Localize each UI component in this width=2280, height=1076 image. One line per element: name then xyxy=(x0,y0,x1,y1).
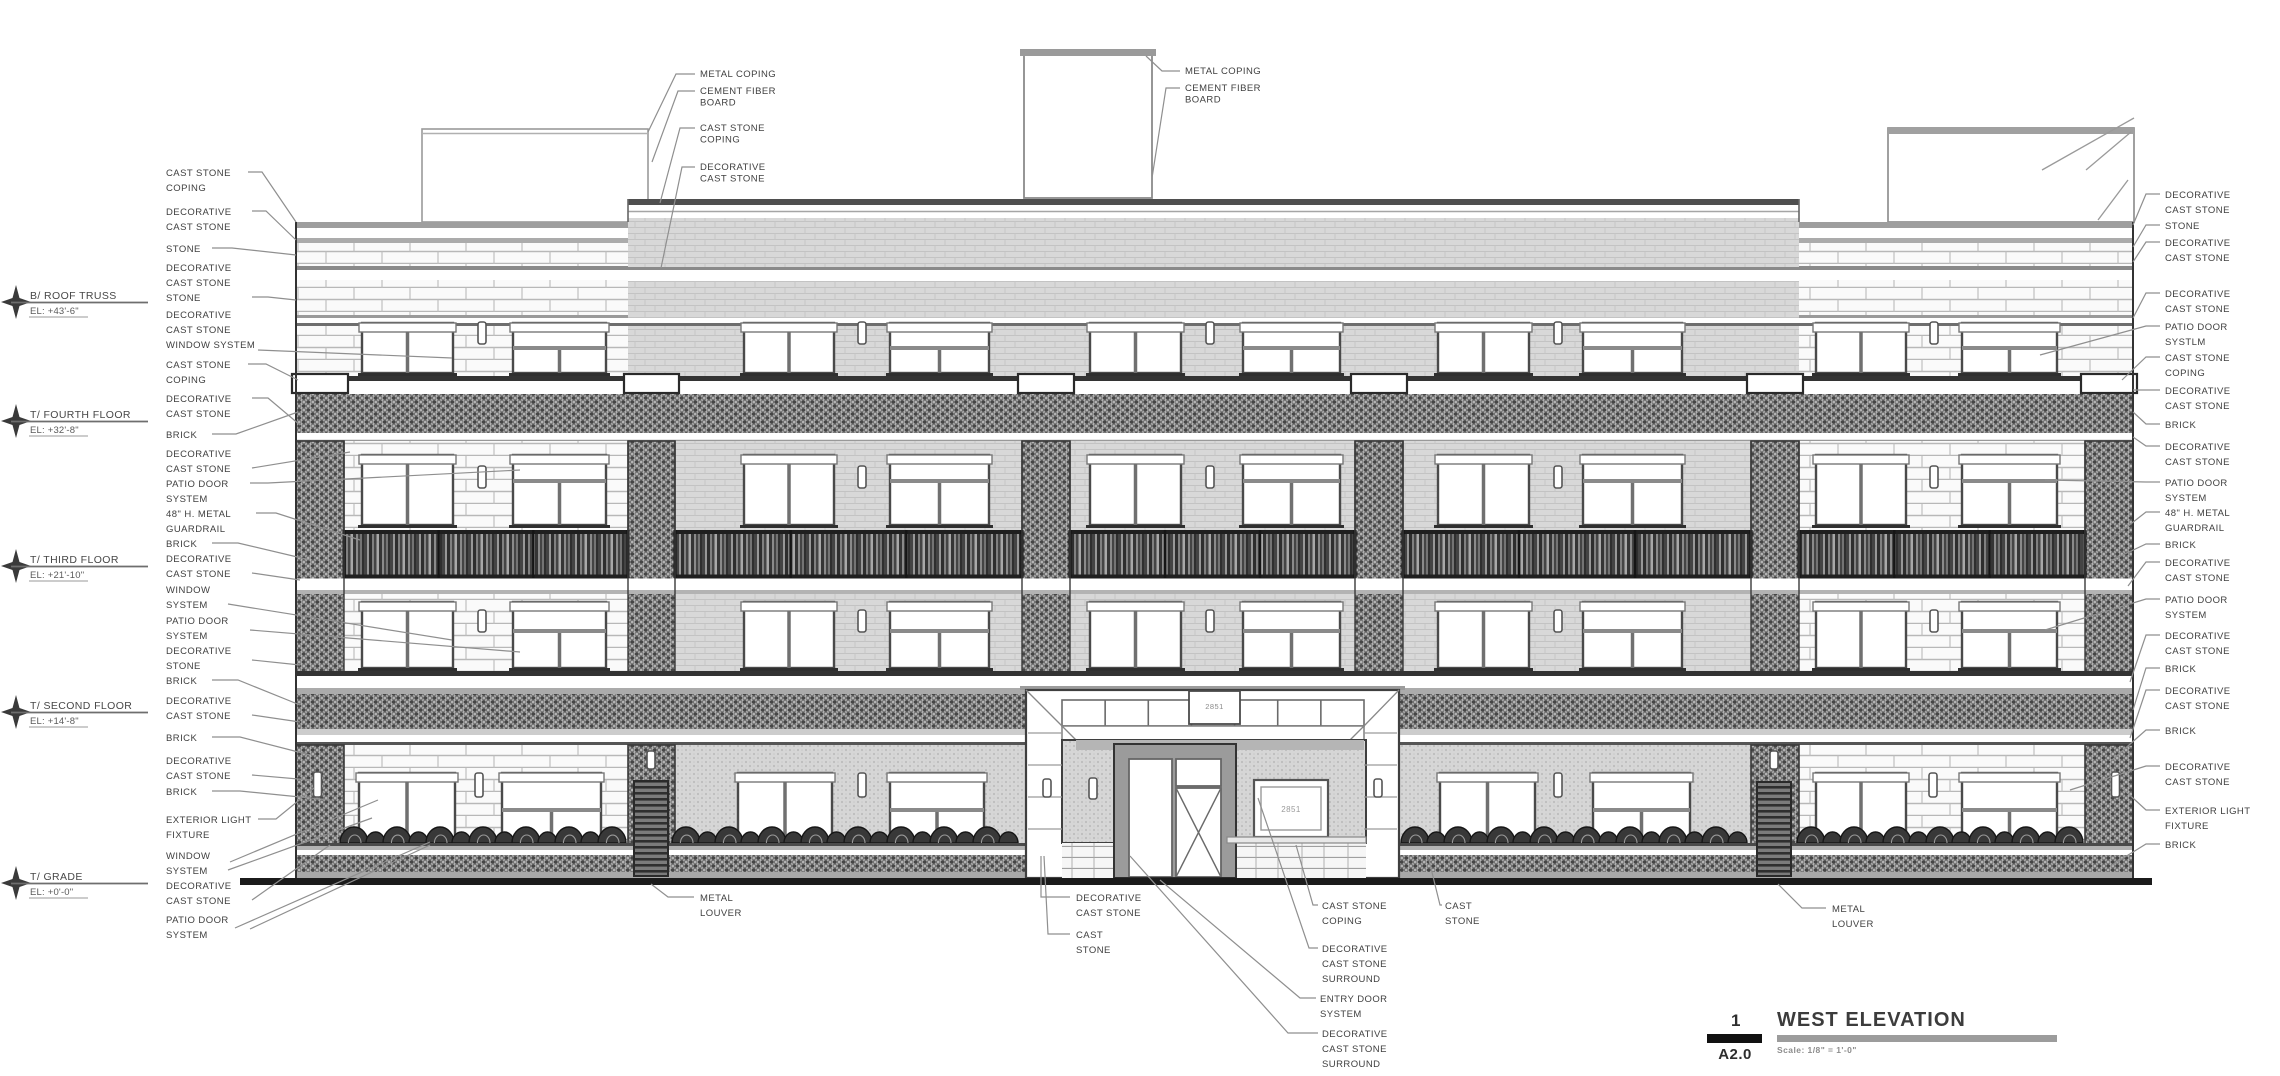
svg-text:BOARD: BOARD xyxy=(1185,95,1221,106)
svg-text:CAST STONE: CAST STONE xyxy=(2165,701,2230,712)
svg-text:COPING: COPING xyxy=(700,135,740,146)
svg-text:METAL COPING: METAL COPING xyxy=(1185,66,1261,77)
svg-text:STONE: STONE xyxy=(2165,221,2200,232)
svg-text:DECORATIVE: DECORATIVE xyxy=(2165,190,2231,201)
svg-text:WEST ELEVATION: WEST ELEVATION xyxy=(1777,1009,1966,1031)
svg-text:DECORATIVE: DECORATIVE xyxy=(166,756,232,767)
svg-text:PATIO DOOR: PATIO DOOR xyxy=(166,915,229,926)
svg-text:SYSTEM: SYSTEM xyxy=(2165,610,2207,621)
svg-text:WINDOW SYSTEM: WINDOW SYSTEM xyxy=(166,340,255,351)
svg-text:BRICK: BRICK xyxy=(2165,664,2196,675)
svg-text:EL: +21'-10": EL: +21'-10" xyxy=(30,570,84,581)
svg-text:DECORATIVE: DECORATIVE xyxy=(2165,238,2231,249)
svg-text:SYSTEM: SYSTEM xyxy=(166,930,208,941)
svg-text:DECORATIVE: DECORATIVE xyxy=(166,263,232,274)
svg-text:CAST STONE: CAST STONE xyxy=(166,325,231,336)
svg-text:DECORATIVE: DECORATIVE xyxy=(2165,386,2231,397)
svg-text:B/ ROOF TRUSS: B/ ROOF TRUSS xyxy=(30,290,117,302)
svg-text:1: 1 xyxy=(1731,1011,1741,1030)
svg-text:DECORATIVE: DECORATIVE xyxy=(166,881,232,892)
svg-text:DECORATIVE: DECORATIVE xyxy=(166,554,232,565)
svg-text:EL: +32'-8": EL: +32'-8" xyxy=(30,425,79,436)
svg-text:STONE: STONE xyxy=(166,244,201,255)
svg-text:SYSTEM: SYSTEM xyxy=(166,631,208,642)
svg-text:T/ FOURTH FLOOR: T/ FOURTH FLOOR xyxy=(30,409,131,421)
svg-text:CAST: CAST xyxy=(1445,901,1472,912)
svg-text:GUARDRAIL: GUARDRAIL xyxy=(2165,523,2224,534)
svg-text:CAST STONE: CAST STONE xyxy=(166,896,231,907)
svg-text:CEMENT FIBER: CEMENT FIBER xyxy=(700,86,776,97)
svg-text:CAST STONE: CAST STONE xyxy=(166,360,231,371)
svg-text:PATIO DOOR: PATIO DOOR xyxy=(2165,322,2228,333)
svg-text:CAST STONE: CAST STONE xyxy=(1322,901,1387,912)
svg-text:Scale: 1/8" = 1'-0": Scale: 1/8" = 1'-0" xyxy=(1777,1045,1857,1055)
svg-text:DECORATIVE: DECORATIVE xyxy=(2165,686,2231,697)
svg-text:CAST STONE: CAST STONE xyxy=(1322,1044,1387,1055)
svg-text:METAL: METAL xyxy=(1832,904,1865,915)
svg-text:STONE: STONE xyxy=(1076,945,1111,956)
svg-text:DECORATIVE: DECORATIVE xyxy=(166,449,232,460)
svg-text:CAST STONE: CAST STONE xyxy=(166,168,231,179)
svg-text:WINDOW: WINDOW xyxy=(166,585,210,596)
svg-text:CAST STONE: CAST STONE xyxy=(2165,353,2230,364)
svg-text:CAST STONE: CAST STONE xyxy=(166,222,231,233)
svg-text:EXTERIOR LIGHT: EXTERIOR LIGHT xyxy=(2165,806,2250,817)
svg-text:DECORATIVE: DECORATIVE xyxy=(2165,289,2231,300)
svg-text:COPING: COPING xyxy=(1322,916,1362,927)
svg-text:SYSTEM: SYSTEM xyxy=(166,600,208,611)
svg-text:GUARDRAIL: GUARDRAIL xyxy=(166,524,225,535)
svg-text:METAL COPING: METAL COPING xyxy=(700,69,776,80)
svg-text:DECORATIVE: DECORATIVE xyxy=(166,646,232,657)
svg-text:DECORATIVE: DECORATIVE xyxy=(700,162,766,173)
svg-text:EL: +43'-6": EL: +43'-6" xyxy=(30,306,79,317)
svg-text:BRICK: BRICK xyxy=(166,430,197,441)
svg-text:DECORATIVE: DECORATIVE xyxy=(166,207,232,218)
svg-text:CAST STONE: CAST STONE xyxy=(166,771,231,782)
svg-text:CAST STONE: CAST STONE xyxy=(2165,205,2230,216)
svg-text:DECORATIVE: DECORATIVE xyxy=(2165,762,2231,773)
svg-text:BRICK: BRICK xyxy=(166,539,197,550)
svg-text:CAST STONE: CAST STONE xyxy=(1076,908,1141,919)
svg-text:DECORATIVE: DECORATIVE xyxy=(2165,558,2231,569)
svg-text:T/ GRADE: T/ GRADE xyxy=(30,871,83,883)
svg-text:CAST STONE: CAST STONE xyxy=(166,278,231,289)
svg-text:DECORATIVE: DECORATIVE xyxy=(2165,442,2231,453)
svg-text:BRICK: BRICK xyxy=(2165,540,2196,551)
svg-text:BRICK: BRICK xyxy=(2165,840,2196,851)
svg-text:SYSTEM: SYSTEM xyxy=(2165,493,2207,504)
svg-text:COPING: COPING xyxy=(2165,368,2205,379)
svg-text:COPING: COPING xyxy=(166,183,206,194)
svg-text:PATIO DOOR: PATIO DOOR xyxy=(166,616,229,627)
svg-text:DECORATIVE: DECORATIVE xyxy=(166,310,232,321)
svg-text:T/ THIRD FLOOR: T/ THIRD FLOOR xyxy=(30,554,119,566)
svg-text:2851: 2851 xyxy=(1281,805,1301,814)
svg-text:SURROUND: SURROUND xyxy=(1322,1059,1381,1070)
svg-text:LOUVER: LOUVER xyxy=(700,908,742,919)
svg-text:DECORATIVE: DECORATIVE xyxy=(2165,631,2231,642)
svg-text:CAST STONE: CAST STONE xyxy=(166,409,231,420)
svg-text:A2.0: A2.0 xyxy=(1718,1046,1752,1063)
svg-text:BRICK: BRICK xyxy=(2165,726,2196,737)
svg-text:FIXTURE: FIXTURE xyxy=(2165,821,2209,832)
svg-text:EL: +14'-8": EL: +14'-8" xyxy=(30,716,79,727)
svg-text:BRICK: BRICK xyxy=(166,787,197,798)
svg-text:CAST: CAST xyxy=(1076,930,1103,941)
svg-text:CAST STONE: CAST STONE xyxy=(166,464,231,475)
svg-text:METAL: METAL xyxy=(700,893,733,904)
svg-text:48" H. METAL: 48" H. METAL xyxy=(166,509,231,520)
svg-text:PATIO DOOR: PATIO DOOR xyxy=(166,479,229,490)
svg-text:SURROUND: SURROUND xyxy=(1322,974,1381,985)
svg-text:DECORATIVE: DECORATIVE xyxy=(1076,893,1142,904)
svg-text:EXTERIOR LIGHT: EXTERIOR LIGHT xyxy=(166,815,251,826)
svg-text:CAST STONE: CAST STONE xyxy=(2165,457,2230,468)
svg-text:CEMENT FIBER: CEMENT FIBER xyxy=(1185,83,1261,94)
svg-text:LOUVER: LOUVER xyxy=(1832,919,1874,930)
svg-text:CAST STONE: CAST STONE xyxy=(2165,401,2230,412)
svg-text:BRICK: BRICK xyxy=(166,676,197,687)
svg-text:CAST STONE: CAST STONE xyxy=(2165,253,2230,264)
svg-text:CAST STONE: CAST STONE xyxy=(166,711,231,722)
svg-text:ENTRY DOOR: ENTRY DOOR xyxy=(1320,994,1388,1005)
svg-text:STONE: STONE xyxy=(1445,916,1480,927)
svg-text:SYSTEM: SYSTEM xyxy=(1320,1009,1362,1020)
svg-text:WINDOW: WINDOW xyxy=(166,851,210,862)
svg-text:BRICK: BRICK xyxy=(2165,420,2196,431)
svg-text:T/ SECOND FLOOR: T/ SECOND FLOOR xyxy=(30,700,132,712)
svg-text:2851: 2851 xyxy=(1205,702,1224,711)
svg-text:CAST STONE: CAST STONE xyxy=(2165,304,2230,315)
svg-text:SYSTLM: SYSTLM xyxy=(2165,337,2206,348)
svg-text:CAST STONE: CAST STONE xyxy=(2165,777,2230,788)
svg-text:SYSTEM: SYSTEM xyxy=(166,866,208,877)
svg-text:PATIO DOOR: PATIO DOOR xyxy=(2165,595,2228,606)
svg-text:SYSTEM: SYSTEM xyxy=(166,494,208,505)
svg-text:BRICK: BRICK xyxy=(166,733,197,744)
svg-text:48" H. METAL: 48" H. METAL xyxy=(2165,508,2230,519)
svg-text:STONE: STONE xyxy=(166,293,201,304)
svg-text:CAST STONE: CAST STONE xyxy=(2165,646,2230,657)
svg-text:FIXTURE: FIXTURE xyxy=(166,830,210,841)
svg-text:CAST STONE: CAST STONE xyxy=(700,123,765,134)
svg-text:CAST STONE: CAST STONE xyxy=(2165,573,2230,584)
svg-text:BOARD: BOARD xyxy=(700,98,736,109)
svg-text:CAST STONE: CAST STONE xyxy=(700,174,765,185)
svg-text:DECORATIVE: DECORATIVE xyxy=(166,696,232,707)
svg-text:DECORATIVE: DECORATIVE xyxy=(166,394,232,405)
svg-text:PATIO DOOR: PATIO DOOR xyxy=(2165,478,2228,489)
svg-text:COPING: COPING xyxy=(166,375,206,386)
svg-text:DECORATIVE: DECORATIVE xyxy=(1322,1029,1388,1040)
svg-text:STONE: STONE xyxy=(166,661,201,672)
svg-text:CAST STONE: CAST STONE xyxy=(1322,959,1387,970)
svg-text:EL: +0'-0": EL: +0'-0" xyxy=(30,887,73,898)
svg-text:DECORATIVE: DECORATIVE xyxy=(1322,944,1388,955)
svg-text:CAST STONE: CAST STONE xyxy=(166,569,231,580)
